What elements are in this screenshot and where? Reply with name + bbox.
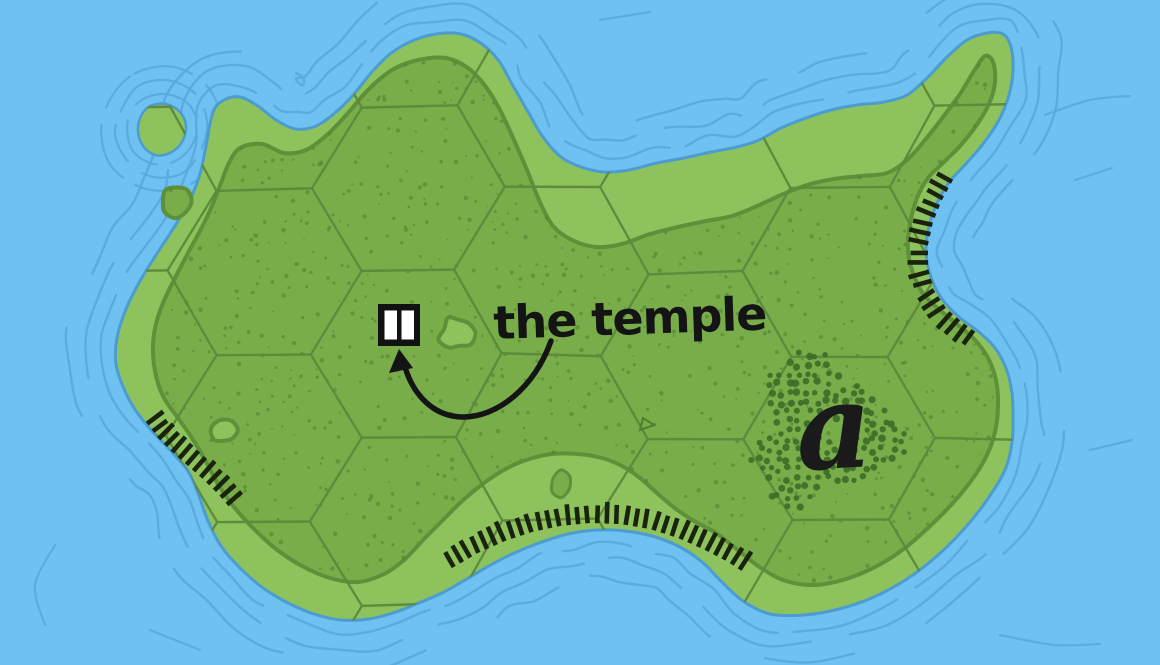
area-a-label: a: [792, 355, 876, 498]
island-hex-map: the temple a: [0, 0, 1160, 665]
temple-icon-right-panel: [402, 311, 415, 340]
temple-icon: [378, 304, 420, 346]
temple-label: the temple: [492, 286, 767, 349]
temple-icon-left-panel: [385, 311, 398, 340]
map-canvas: the temple a: [0, 0, 1160, 665]
small-islet: [138, 104, 186, 156]
